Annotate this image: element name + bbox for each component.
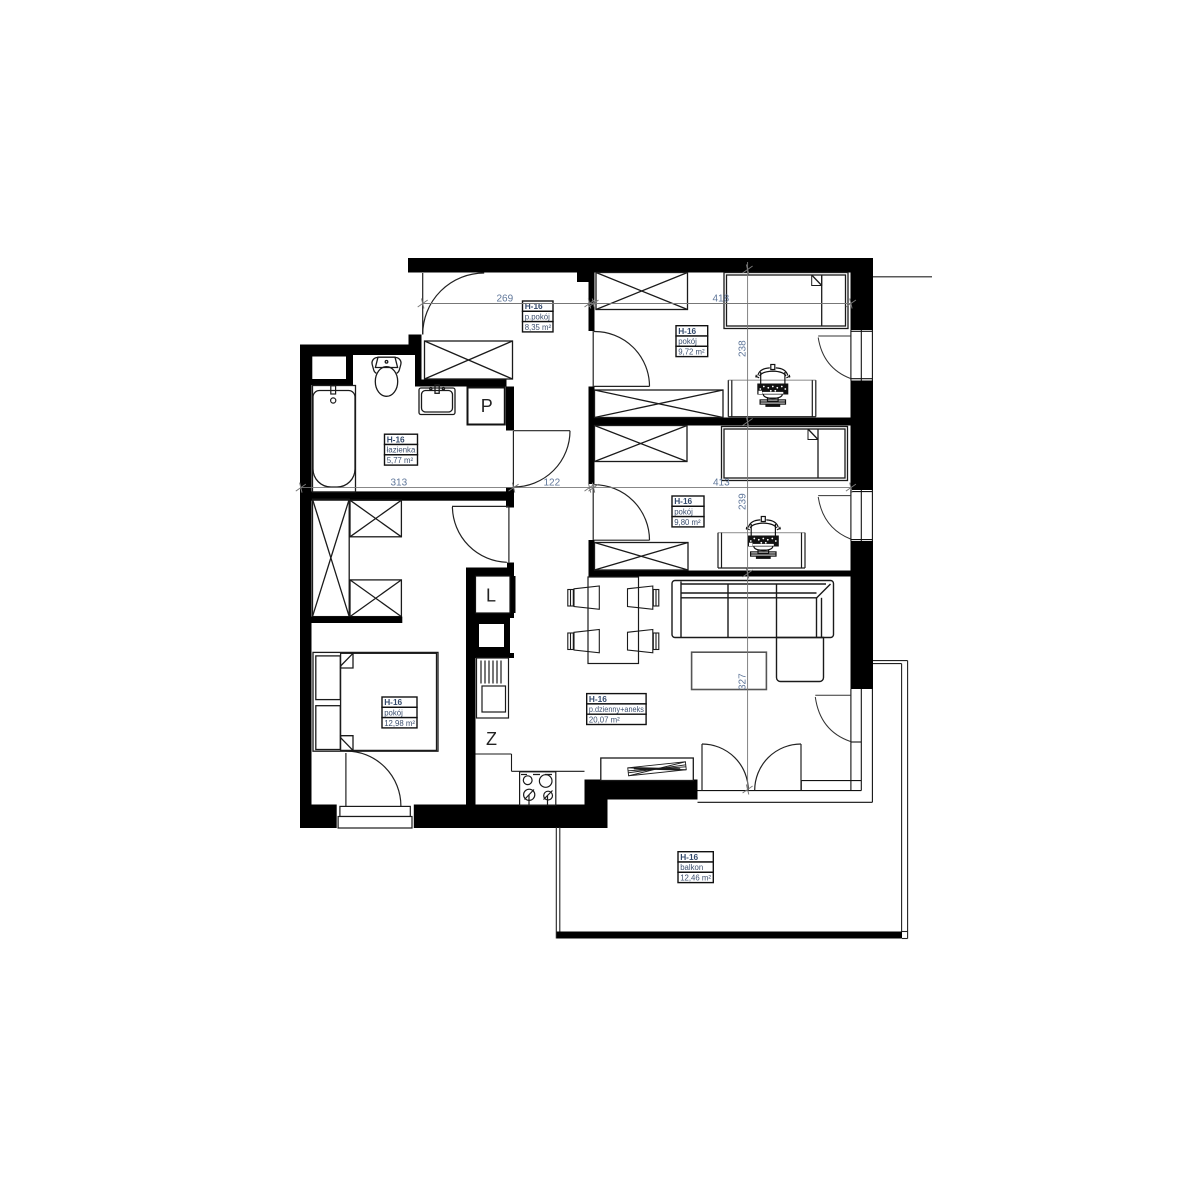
svg-text:H-16: H-16 bbox=[387, 434, 405, 444]
svg-text:269: 269 bbox=[497, 294, 514, 305]
svg-text:P: P bbox=[481, 396, 493, 416]
svg-text:5,77 m²: 5,77 m² bbox=[387, 456, 414, 465]
svg-text:Z: Z bbox=[486, 729, 497, 749]
svg-text:pokój: pokój bbox=[674, 508, 693, 517]
svg-text:327: 327 bbox=[738, 673, 749, 690]
svg-text:418: 418 bbox=[713, 294, 730, 305]
svg-text:H-16: H-16 bbox=[525, 301, 543, 311]
svg-text:313: 313 bbox=[391, 478, 408, 489]
svg-text:H-16: H-16 bbox=[680, 852, 698, 862]
svg-text:20,07 m²: 20,07 m² bbox=[589, 715, 620, 724]
svg-text:122: 122 bbox=[544, 478, 561, 489]
svg-text:p.dzienny+aneks: p.dzienny+aneks bbox=[589, 705, 644, 714]
svg-text:8,35 m²: 8,35 m² bbox=[525, 323, 552, 332]
svg-text:łazienka: łazienka bbox=[387, 446, 416, 455]
svg-text:pokój: pokój bbox=[678, 337, 697, 346]
svg-text:413: 413 bbox=[713, 478, 730, 489]
svg-text:12,98 m²: 12,98 m² bbox=[384, 719, 415, 728]
svg-text:balkon: balkon bbox=[680, 863, 703, 872]
svg-text:9,72 m²: 9,72 m² bbox=[678, 348, 705, 357]
svg-text:9,80 m²: 9,80 m² bbox=[674, 518, 701, 527]
svg-text:L: L bbox=[486, 586, 496, 606]
svg-text:H-16: H-16 bbox=[674, 496, 692, 506]
svg-text:H-16: H-16 bbox=[384, 697, 402, 707]
svg-text:238: 238 bbox=[738, 340, 749, 357]
svg-text:12,46 m²: 12,46 m² bbox=[680, 874, 711, 883]
svg-text:p.pokój: p.pokój bbox=[525, 313, 550, 322]
svg-text:H-16: H-16 bbox=[678, 326, 696, 336]
svg-text:239: 239 bbox=[738, 493, 749, 510]
svg-text:pokój: pokój bbox=[384, 709, 403, 718]
svg-text:H-16: H-16 bbox=[589, 694, 607, 704]
